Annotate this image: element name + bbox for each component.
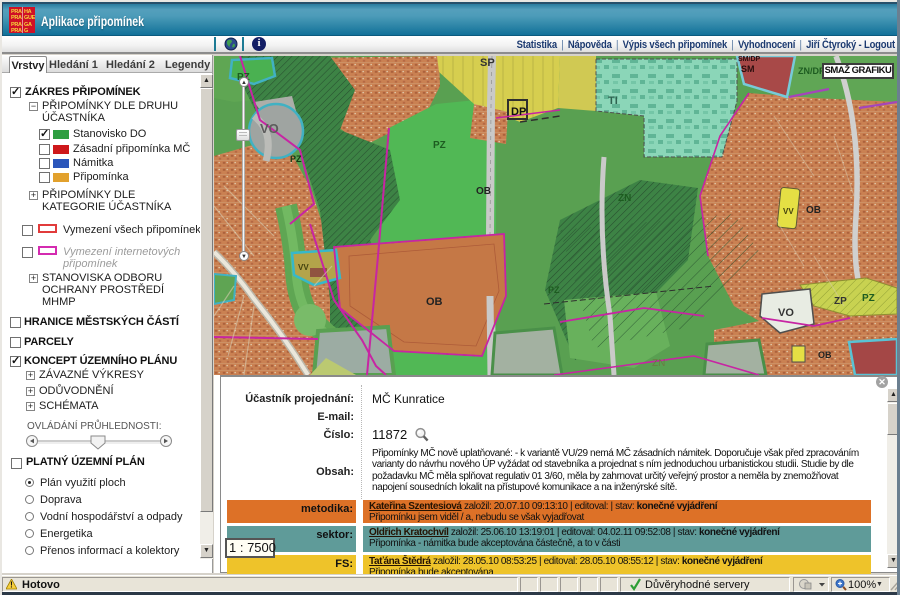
svg-text:SP: SP [480, 57, 495, 69]
svg-text:VV: VV [298, 263, 309, 272]
svg-text:ZN: ZN [652, 358, 665, 369]
svg-text:OB: OB [818, 350, 832, 360]
svg-text:!: ! [10, 581, 13, 590]
svg-text:VV: VV [783, 207, 794, 216]
svg-text:SM: SM [741, 64, 755, 74]
svg-text:VO: VO [778, 307, 794, 319]
svg-text:PZ: PZ [862, 293, 875, 304]
svg-text:SM/DP: SM/DP [738, 56, 761, 63]
svg-text:ZN/DP: ZN/DP [798, 66, 825, 76]
svg-text:TI: TI [608, 95, 618, 107]
svg-text:OB: OB [476, 186, 491, 197]
svg-text:OB: OB [426, 296, 443, 308]
svg-text:PZ: PZ [433, 140, 446, 151]
svg-text:PZ: PZ [548, 285, 560, 295]
svg-text:DP: DP [511, 106, 526, 118]
svg-text:ZN: ZN [618, 193, 631, 204]
svg-text:VO: VO [260, 121, 279, 136]
svg-text:OB: OB [806, 205, 821, 216]
svg-text:ZP: ZP [834, 296, 847, 307]
svg-text:PZ: PZ [290, 154, 302, 164]
